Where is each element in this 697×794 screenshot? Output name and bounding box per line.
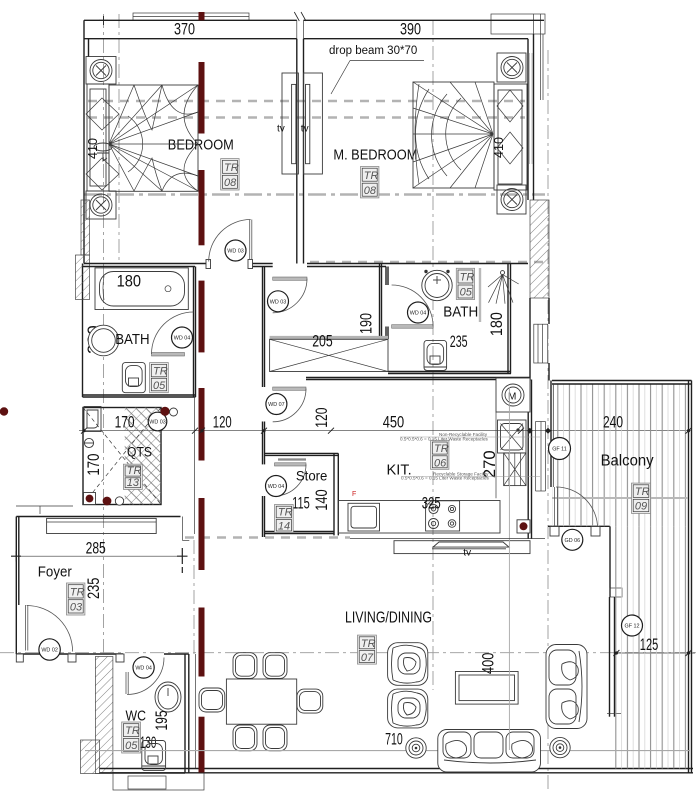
svg-text:tv: tv [463, 548, 471, 559]
svg-text:125: 125 [640, 636, 659, 654]
svg-text:BATH: BATH [443, 305, 478, 321]
svg-text:TR: TR [361, 638, 376, 650]
svg-text:WD 04: WD 04 [410, 311, 426, 317]
svg-text:450: 450 [383, 414, 405, 432]
svg-text:WD 04: WD 04 [135, 666, 151, 672]
svg-text:WD 03: WD 03 [149, 420, 165, 426]
svg-text:235: 235 [85, 578, 103, 599]
svg-text:285: 285 [86, 540, 106, 558]
svg-text:GD 06: GD 06 [565, 538, 581, 544]
svg-text:710: 710 [385, 730, 403, 748]
svg-text:03: 03 [70, 602, 83, 614]
svg-text:WD 04: WD 04 [174, 336, 190, 342]
svg-text:WD 03: WD 03 [227, 249, 243, 255]
svg-text:drop beam 30*70: drop beam 30*70 [329, 45, 417, 57]
svg-text:05: 05 [153, 380, 166, 392]
svg-text:TR: TR [127, 465, 142, 477]
svg-text:QTS: QTS [127, 445, 152, 460]
svg-text:LIVING/DINING: LIVING/DINING [345, 610, 432, 627]
svg-text:190: 190 [358, 313, 376, 334]
svg-text:410: 410 [85, 138, 100, 159]
svg-text:TR: TR [434, 443, 449, 455]
svg-text:Balcony: Balcony [601, 453, 654, 470]
svg-text:170: 170 [115, 414, 135, 432]
svg-text:180: 180 [488, 312, 506, 336]
svg-text:TR: TR [70, 586, 85, 598]
svg-text:120: 120 [313, 408, 331, 428]
svg-text:WD 02: WD 02 [41, 648, 57, 654]
svg-text:tv: tv [277, 124, 285, 135]
svg-text:410: 410 [491, 137, 506, 158]
svg-text:325: 325 [422, 494, 441, 512]
svg-text:370: 370 [174, 21, 195, 39]
svg-text:06: 06 [434, 457, 447, 469]
svg-text:08: 08 [224, 177, 237, 189]
svg-text:115: 115 [292, 494, 310, 512]
svg-text:Store: Store [296, 468, 328, 484]
svg-text:M. BEDROOM: M. BEDROOM [333, 147, 417, 164]
svg-text:F: F [352, 491, 356, 498]
svg-text:GF 11: GF 11 [552, 447, 567, 453]
svg-text:tv: tv [301, 124, 309, 135]
svg-text:140: 140 [313, 489, 331, 510]
svg-text:14: 14 [278, 521, 290, 533]
svg-text:09: 09 [635, 501, 647, 513]
svg-text:05: 05 [460, 287, 473, 299]
svg-text:TR: TR [364, 170, 379, 182]
svg-text:120: 120 [213, 414, 232, 432]
svg-text:TR: TR [460, 272, 475, 284]
svg-text:400: 400 [480, 653, 498, 674]
svg-text:195: 195 [153, 711, 171, 731]
svg-text:WD 03: WD 03 [270, 299, 286, 305]
svg-text:BATH: BATH [115, 332, 149, 348]
svg-text:BEDROOM: BEDROOM [168, 137, 234, 154]
svg-text:TR: TR [635, 486, 650, 498]
svg-text:Foyer: Foyer [38, 563, 72, 580]
svg-text:TR: TR [153, 366, 168, 378]
svg-text:240: 240 [603, 414, 623, 432]
svg-text:TR: TR [125, 725, 140, 737]
svg-text:GF 12: GF 12 [625, 624, 640, 630]
svg-text:WD 07: WD 07 [268, 402, 284, 408]
svg-text:205: 205 [312, 333, 333, 351]
svg-text:170: 170 [85, 454, 103, 476]
svg-text:TR: TR [224, 162, 239, 174]
svg-text:07: 07 [361, 652, 374, 664]
svg-text:13: 13 [127, 477, 140, 489]
svg-text:08: 08 [364, 185, 377, 197]
svg-text:WD 04: WD 04 [268, 484, 284, 490]
svg-text:390: 390 [400, 21, 421, 39]
svg-text:180: 180 [117, 273, 141, 291]
svg-text:TR: TR [278, 507, 293, 519]
svg-text:235: 235 [450, 333, 468, 351]
